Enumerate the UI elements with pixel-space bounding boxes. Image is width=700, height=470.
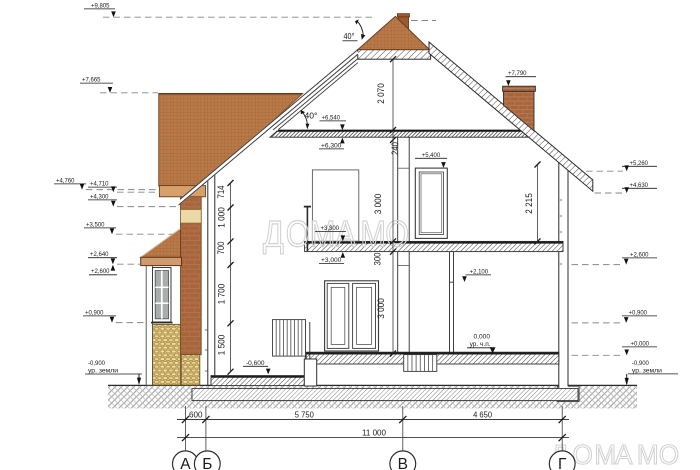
svg-text:+7,665: +7,665 [82,77,101,84]
svg-text:2 070: 2 070 [376,83,386,104]
svg-text:11 000: 11 000 [362,428,387,437]
svg-text:М: М [310,214,336,255]
svg-text:2 215: 2 215 [524,193,534,214]
svg-text:40°: 40° [344,32,355,41]
svg-text:-0,600: -0,600 [246,360,265,367]
svg-text:Д: Д [263,214,284,255]
svg-text:А: А [615,439,633,470]
svg-text:О: О [286,214,310,255]
svg-text:3 000: 3 000 [373,194,383,215]
svg-text:+0,000: +0,000 [631,340,650,347]
svg-text:+5,260: +5,260 [630,160,649,167]
svg-text:1 500: 1 500 [217,335,227,356]
svg-text:+5,400: +5,400 [422,152,441,159]
svg-text:+4,630: +4,630 [630,182,649,189]
svg-text:О: О [385,214,409,255]
svg-text:ур. ч.п.: ур. ч.п. [470,341,491,348]
svg-text:А: А [180,456,191,470]
svg-text:+2,600: +2,600 [630,251,649,258]
svg-text:+4,300: +4,300 [90,193,109,200]
svg-text:1 000: 1 000 [217,207,227,228]
svg-text:-0,900: -0,900 [88,360,105,367]
svg-text:М: М [594,439,616,470]
svg-text:ур. земли: ур. земли [88,367,118,374]
svg-text:М: М [360,214,386,255]
svg-text:+3,000: +3,000 [321,257,342,264]
svg-text:А: А [335,214,356,255]
svg-text:Б: Б [202,456,212,470]
svg-text:+4,760: +4,760 [56,177,75,184]
svg-text:О: О [659,439,679,470]
svg-text:+2,640: +2,640 [90,251,109,258]
svg-text:В: В [398,456,408,470]
svg-text:+0,900: +0,900 [85,309,104,316]
svg-text:+3,500: +3,500 [86,221,105,228]
svg-text:714: 714 [216,185,226,198]
svg-text:+2,600: +2,600 [91,268,110,275]
svg-text:+3,300: +3,300 [321,225,340,232]
svg-text:-0,900: -0,900 [632,360,649,367]
svg-text:+0,900: +0,900 [629,309,648,316]
svg-text:240: 240 [390,142,400,155]
svg-text:0,000: 0,000 [474,333,491,340]
svg-text:Г: Г [558,456,567,470]
svg-text:5 750: 5 750 [295,410,315,419]
svg-text:4 650: 4 650 [473,410,493,419]
svg-text:ур. земли: ур. земли [632,367,662,374]
svg-text:М: М [637,439,659,470]
svg-text:+2,100: +2,100 [470,268,489,275]
svg-text:+6,540: +6,540 [322,114,341,121]
svg-text:1 700: 1 700 [217,284,227,305]
svg-text:+6,300: +6,300 [321,142,342,149]
svg-text:300: 300 [373,252,383,265]
svg-text:600: 600 [189,410,203,419]
svg-text:700: 700 [216,241,226,254]
svg-text:3 000: 3 000 [376,298,386,319]
svg-text:+7,790: +7,790 [508,70,527,77]
svg-text:+4,710: +4,710 [90,181,109,188]
svg-text:+9,805: +9,805 [91,2,110,9]
